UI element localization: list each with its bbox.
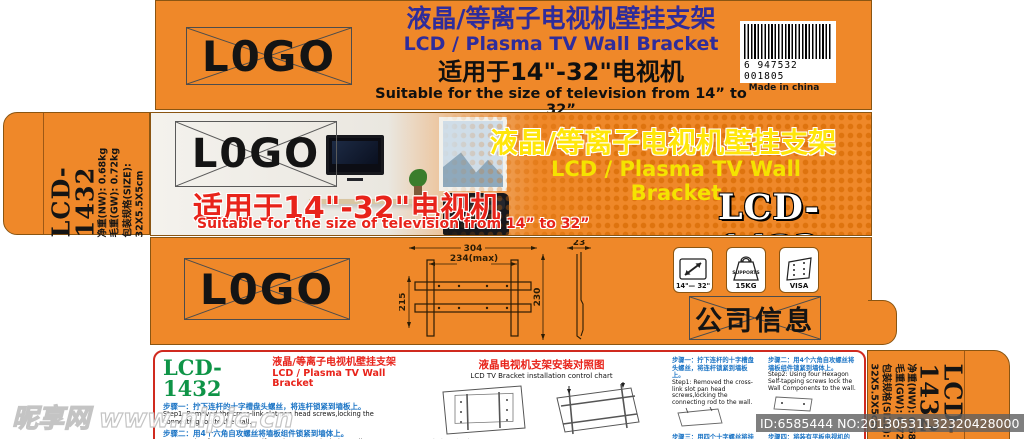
- bracket-front-view-drawing: 304 234(max) 215 230: [399, 240, 549, 344]
- weight-icon: SUPPORTS: [731, 256, 761, 282]
- left-flap-rotated-text: LCD-1432 净重(NW): 0.68kg 毛重(GW): 0.72kg 包…: [44, 113, 151, 236]
- top-fit-cn: 适用于14"-32"电视机: [371, 57, 751, 87]
- dim-215: 215: [399, 293, 408, 312]
- manual-title-en: LCD / Plasma TV Wall Bracket: [272, 369, 411, 390]
- manual-model: LCD-1432: [163, 357, 266, 399]
- icon-box-weight: SUPPORTS 15KG: [726, 247, 766, 293]
- chart-title-en: LCD TV Bracket installation control char…: [419, 372, 664, 380]
- mini-step-1-en: Step1: Removed the cross-link slot pan h…: [672, 380, 760, 408]
- top-panel: L0GO 液晶/等离子电视机壁挂支架 LCD / Plasma TV Wall …: [155, 0, 872, 110]
- wall-plate-sketch: [437, 382, 529, 436]
- dim-304: 304: [464, 244, 483, 254]
- mini-step-4-cn: 步骤四：将装有平板电视机的挂钩组件挂到墙板组件上，并锁紧定位螺丝。: [768, 434, 856, 439]
- made-in-label: Made in china: [740, 83, 828, 93]
- dim-23: 23: [573, 240, 586, 248]
- screen-size-label: 14"— 32": [676, 282, 710, 290]
- id-watermark-text: ID:6585444 NO:20130531132320428000: [760, 416, 1019, 431]
- mini-step-3-cn: 步骤三：用四个十字螺丝将挂钩组件锁紧到平板电视机上。: [672, 434, 760, 439]
- logo-text: L0GO: [202, 32, 336, 81]
- mini-step-3: 步骤三：用四个十字螺丝将挂钩组件锁紧到平板电视机上。 Step3: Using …: [672, 434, 760, 439]
- front-panel: L0GO 适用于14"-32"电视机 Suitable for the size…: [150, 112, 872, 236]
- id-watermark-bar: ID:6585444 NO:20130531132320428000: [756, 414, 1024, 432]
- mini-step-4: 步骤四：将装有平板电视机的挂钩组件挂到墙板组件上，并锁紧定位螺丝。 Step4:…: [768, 434, 856, 439]
- tv-stand: [347, 178, 363, 181]
- site-watermark: 昵享网 www.nipic.cn: [12, 398, 293, 435]
- logo-placeholder-front: L0GO: [175, 121, 337, 187]
- installation-chart-column: 液晶电视机支架安装对照图 LCD TV Bracket installation…: [419, 357, 664, 439]
- barcode-bars-icon: [744, 24, 832, 59]
- mini-step-2-cn: 步骤二：用4个六角自攻螺丝将墙板组件锁紧到墙体上。: [768, 357, 856, 372]
- mini-step-1-cn: 步骤一：拧下连杆的十字槽盘头螺丝，将连杆锁紧到墙板上。: [672, 357, 760, 380]
- top-title-cn: 液晶/等离子电视机壁挂支架: [371, 5, 751, 34]
- icon-box-screen-size: 14"— 32": [673, 247, 713, 293]
- dim-230: 230: [533, 288, 543, 307]
- manual-title-cn: 液晶/等离子电视机壁挂支架: [272, 357, 411, 369]
- barcode-number: 6 947532 001805: [744, 60, 832, 82]
- mini-step-1: 步骤一：拧下连杆的十字槽盘头螺丝，将连杆锁紧到墙板上。 Step1: Remov…: [672, 357, 760, 431]
- dim-234max: 234(max): [450, 254, 498, 264]
- left-side-flap: LCD-1432 净重(NW): 0.68kg 毛重(GW): 0.72kg 包…: [3, 112, 150, 235]
- front-model: LCD-1432: [679, 187, 859, 236]
- logo-text: L0GO: [200, 265, 334, 314]
- logo-placeholder-top: L0GO: [186, 27, 352, 85]
- front-fit-en: Suitable for the size of television from…: [197, 216, 589, 232]
- logo-text: L0GO: [192, 131, 320, 177]
- back-panel: L0GO: [150, 237, 872, 345]
- barcode: 6 947532 001805: [740, 21, 836, 83]
- bracket-perspective-sketch: [543, 382, 647, 436]
- company-info-placeholder: 公司信息: [689, 296, 821, 340]
- front-title-cn: 液晶/等离子电视机壁挂支架: [463, 121, 863, 161]
- tv-screen: [332, 141, 378, 164]
- screen-size-icon: [678, 256, 708, 282]
- logo-placeholder-back: L0GO: [184, 258, 350, 320]
- mini-step-2-sketch: [768, 393, 822, 413]
- chart-title-cn: 液晶电视机支架安装对照图: [419, 357, 664, 372]
- flap-size-value: 32X5.5X5cm: [134, 112, 146, 237]
- bracket-side-view-drawing: 23: [559, 240, 599, 344]
- flap-net-weight: 净重(NW): 0.68kg: [97, 112, 109, 237]
- vesa-label: VISA: [790, 282, 808, 290]
- icon-box-vesa: VISA: [779, 247, 819, 293]
- top-title-en: LCD / Plasma TV Wall Bracket: [371, 34, 751, 55]
- flap-model: LCD-1432: [49, 112, 97, 237]
- weight-label: 15KG: [736, 282, 757, 290]
- weight-top-label: SUPPORTS: [732, 270, 759, 276]
- mini-step-2-en: Step2: Using four Hexagon Self-tapping s…: [768, 372, 856, 393]
- mini-step-1-sketch: [672, 407, 726, 427]
- flap-size-label: 包装规格(SIZE):: [122, 112, 134, 237]
- feature-icons-row: 14"— 32" SUPPORTS 15KG VISA: [673, 247, 819, 293]
- glue-tab: [868, 300, 897, 345]
- vesa-plate-icon: [784, 256, 814, 282]
- company-info-text: 公司信息: [695, 299, 815, 338]
- package-design-canvas: L0GO 液晶/等离子电视机壁挂支架 LCD / Plasma TV Wall …: [0, 0, 1024, 439]
- flap-gross-weight: 毛重(GW): 0.72kg: [109, 112, 121, 237]
